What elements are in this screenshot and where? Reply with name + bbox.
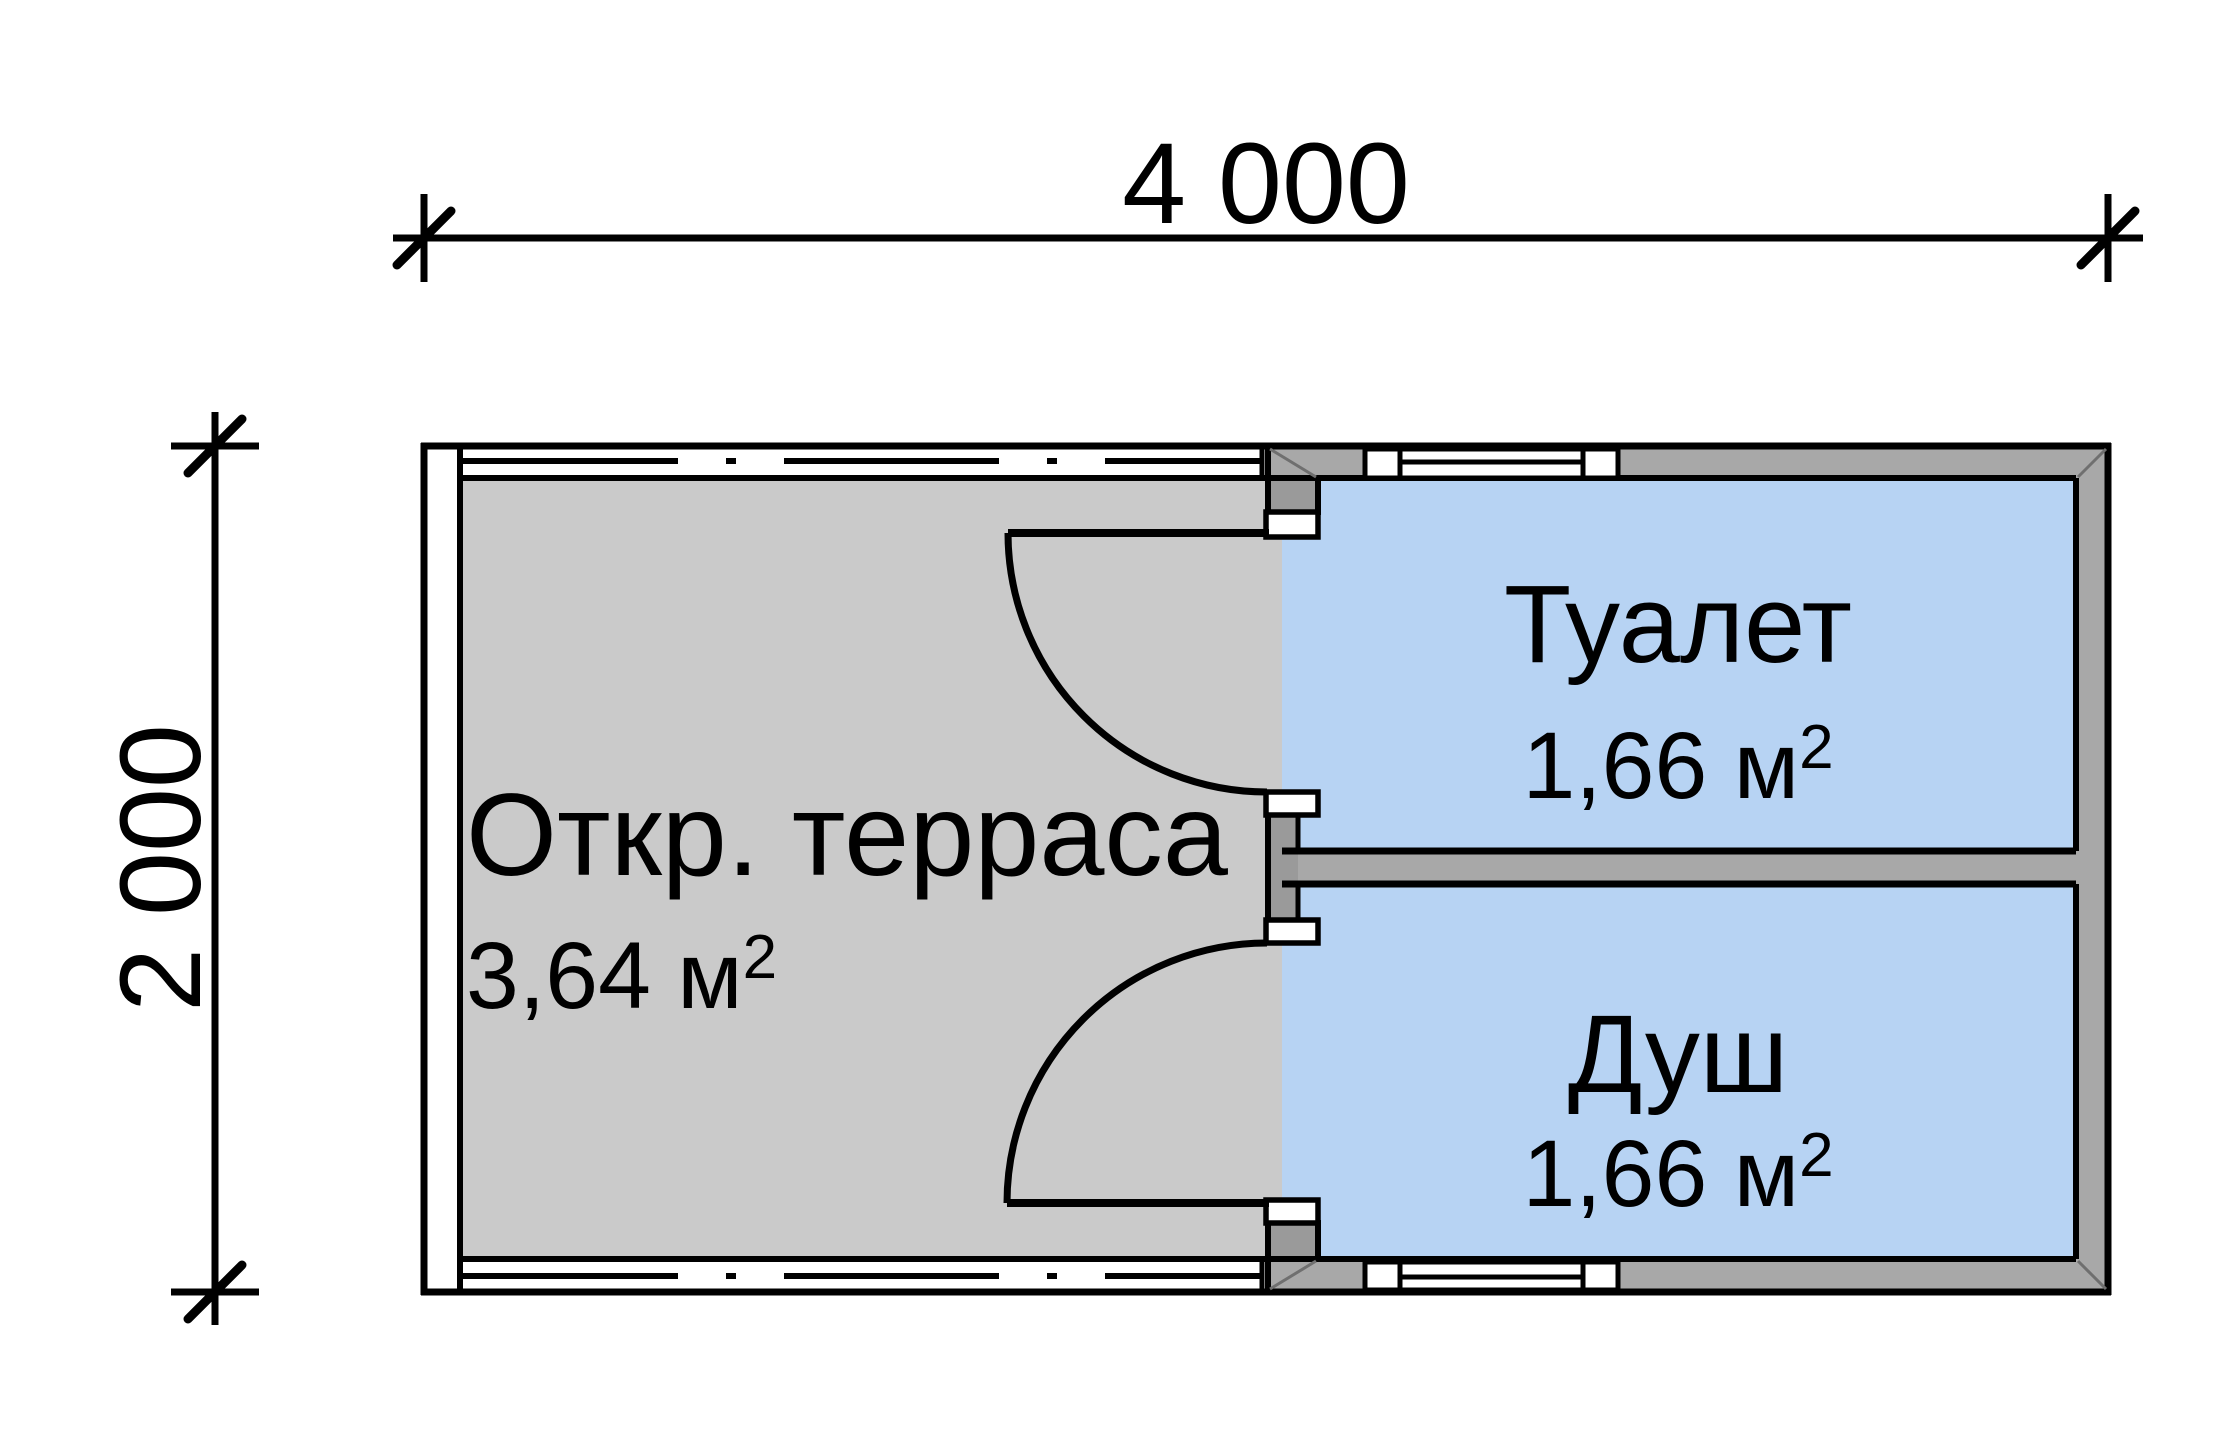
toilet-area-value: 1,66 м bbox=[1522, 713, 1799, 819]
wall-pier-bottom bbox=[1268, 1223, 1318, 1259]
dimension-left: 2 000 bbox=[97, 412, 259, 1325]
shower-area-label: 1,66 м2 bbox=[1522, 1121, 1833, 1227]
toilet-name-label: Туалет bbox=[1504, 563, 1852, 686]
window-bottom bbox=[1365, 1262, 1618, 1290]
door1-hinge-jamb bbox=[1266, 512, 1318, 537]
shower-name-label: Душ bbox=[1568, 993, 1788, 1116]
dimension-label-width: 4 000 bbox=[1122, 120, 1410, 248]
floor-plan-page: 4 000 2 000 bbox=[0, 0, 2235, 1438]
door1-latch-jamb bbox=[1266, 792, 1318, 815]
wall-pier-middle bbox=[1268, 815, 1298, 920]
toilet-area-label: 1,66 м2 bbox=[1522, 713, 1833, 819]
window-top bbox=[1365, 449, 1618, 478]
terrace-area-value: 3,64 м bbox=[466, 923, 743, 1029]
terrace-area-superscript: 2 bbox=[743, 923, 777, 992]
wall-divider bbox=[1282, 851, 2076, 884]
dimension-label-height: 2 000 bbox=[97, 724, 225, 1012]
dimension-top: 4 000 bbox=[393, 120, 2143, 282]
door2-latch-jamb bbox=[1266, 920, 1318, 943]
shower-area-superscript: 2 bbox=[1799, 1121, 1833, 1190]
toilet-area-superscript: 2 bbox=[1799, 713, 1833, 782]
wall-right bbox=[2076, 449, 2106, 1290]
terrace-area-label: 3,64 м2 bbox=[466, 923, 777, 1029]
shower-area-value: 1,66 м bbox=[1522, 1121, 1799, 1227]
wall-pier-top bbox=[1268, 478, 1318, 512]
door2-hinge-jamb bbox=[1266, 1200, 1318, 1223]
floor-plan-canvas: 4 000 2 000 bbox=[0, 0, 2235, 1438]
terrace-name-label: Откр. терраса bbox=[466, 769, 1229, 900]
